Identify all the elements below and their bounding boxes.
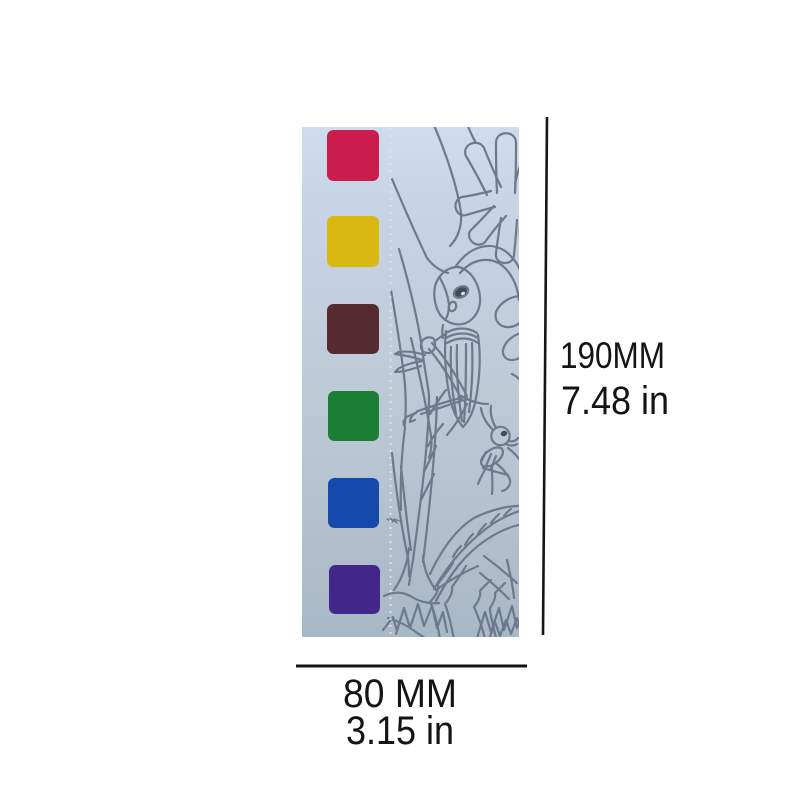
svg-text:3.15 in: 3.15 in: [346, 709, 454, 753]
svg-text:190MM: 190MM: [560, 335, 665, 376]
svg-text:7.48 in: 7.48 in: [561, 379, 669, 423]
